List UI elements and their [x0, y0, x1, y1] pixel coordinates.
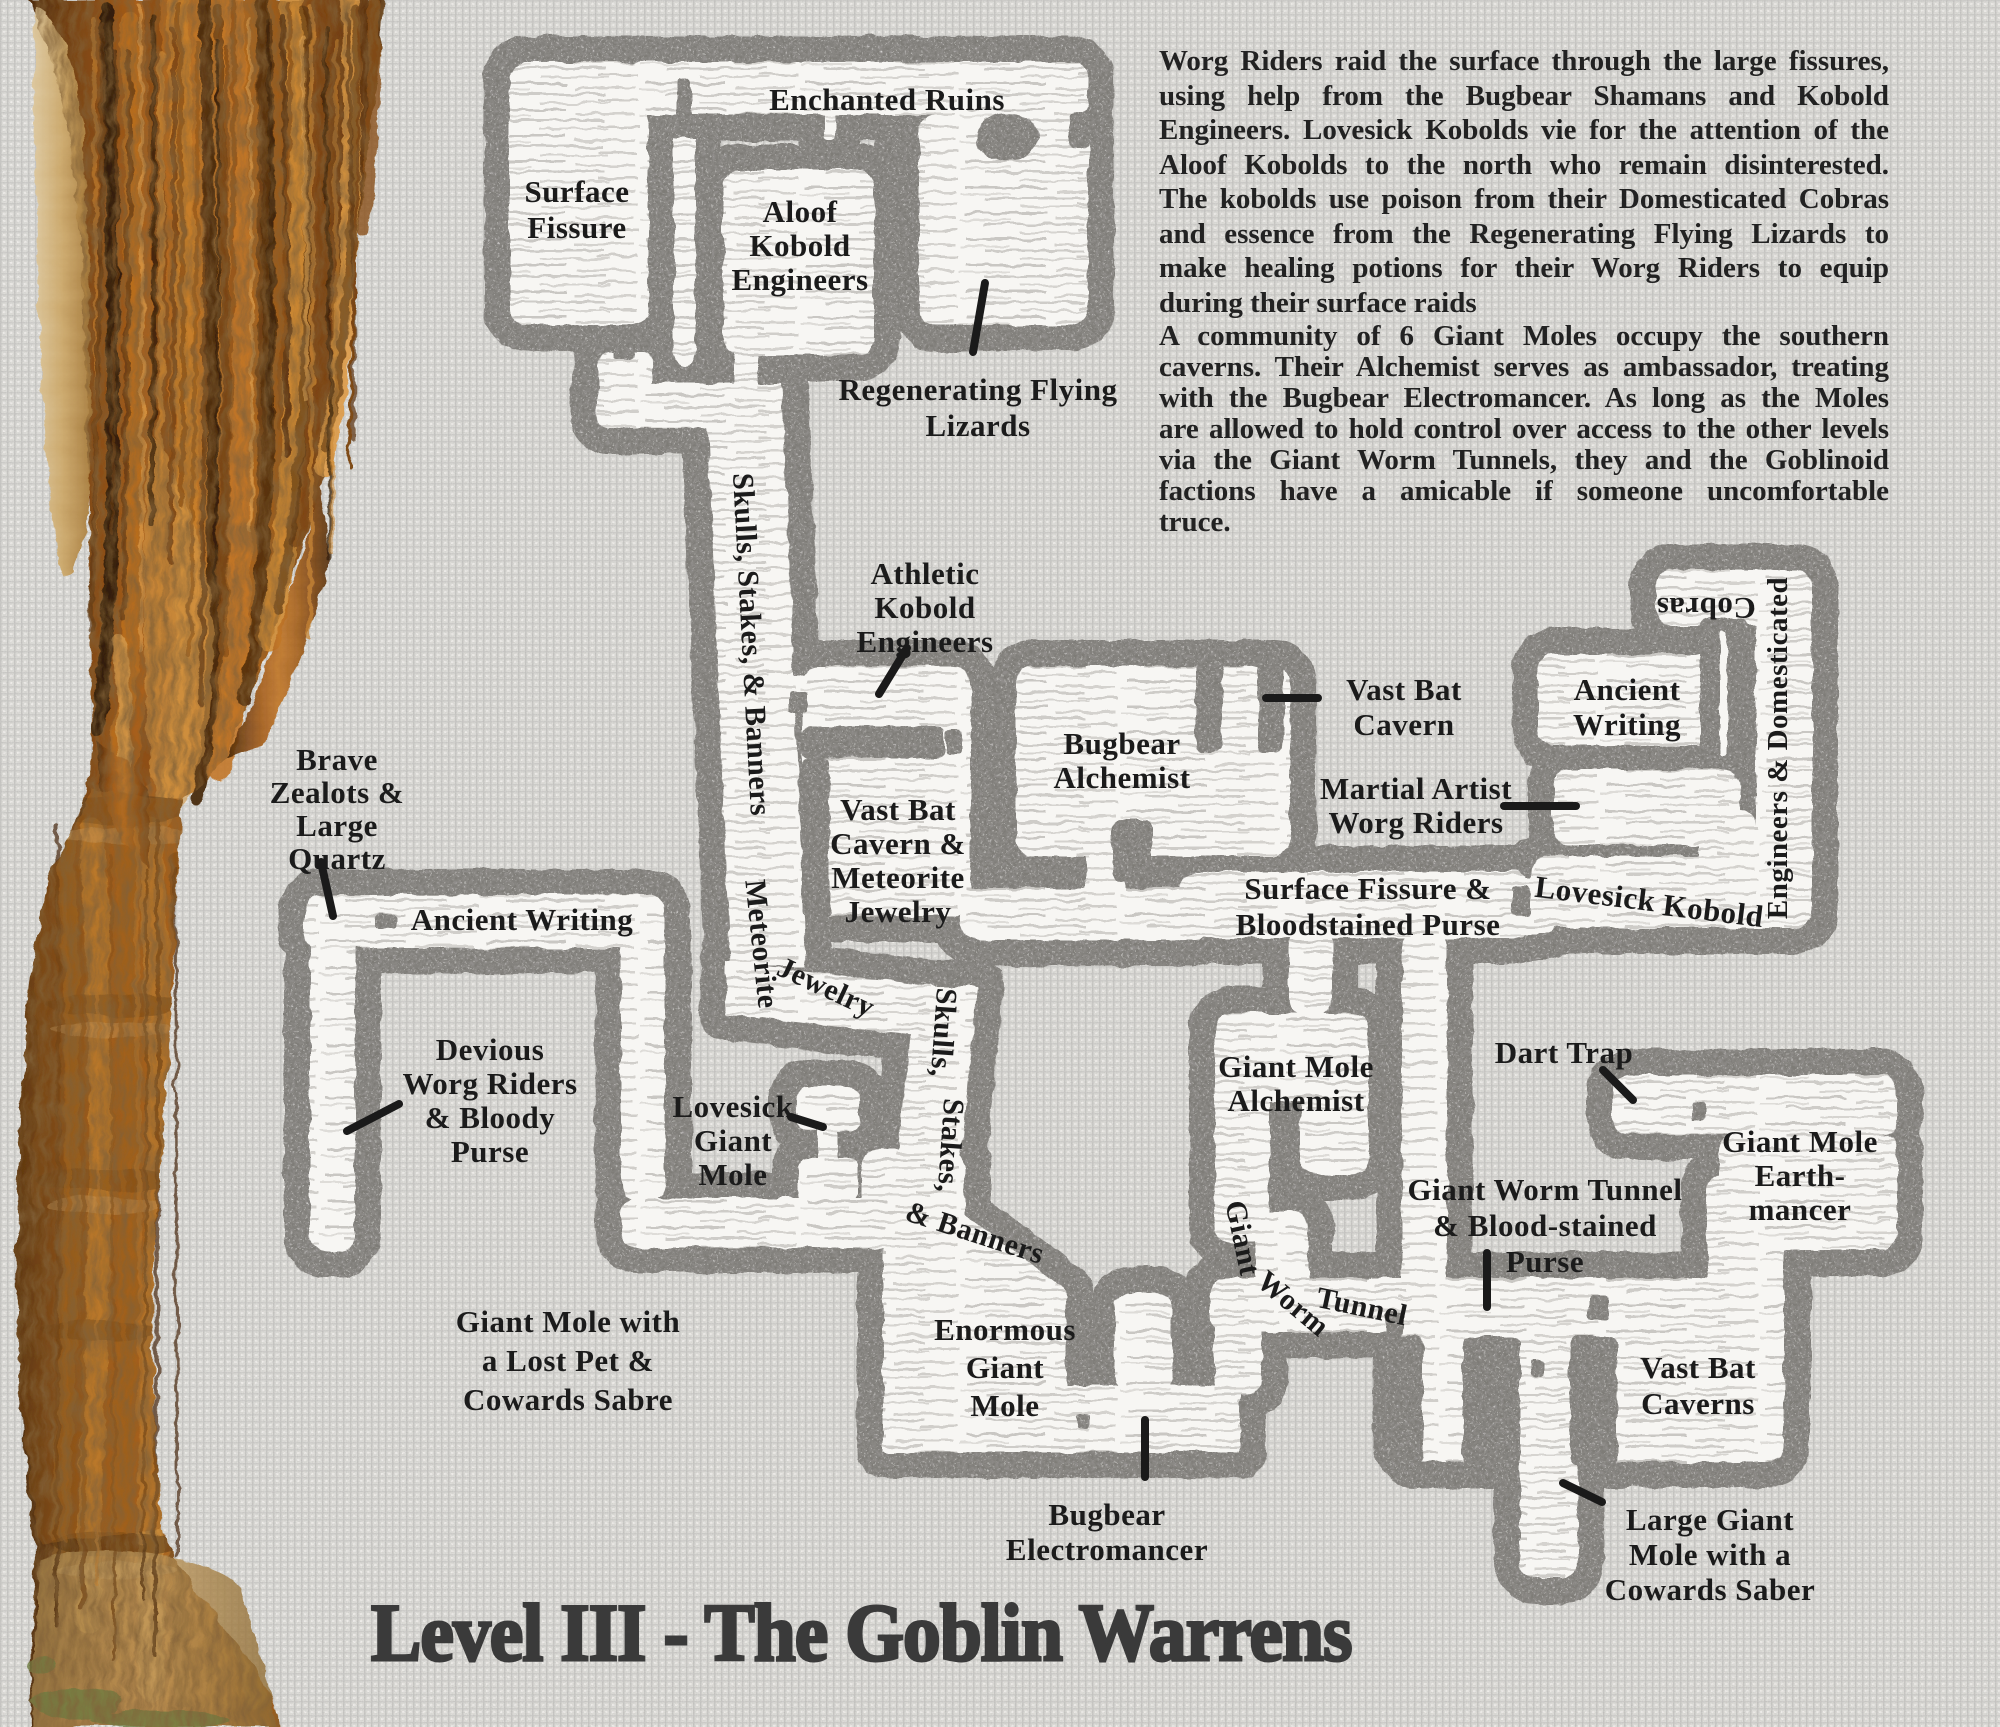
- svg-text:Kobold: Kobold: [874, 590, 975, 625]
- svg-text:Surface: Surface: [524, 174, 629, 209]
- svg-text:a Lost Pet &: a Lost Pet &: [482, 1343, 654, 1378]
- svg-text:mancer: mancer: [1749, 1192, 1852, 1227]
- svg-text:Engineers & Domesticated: Engineers & Domesticated: [1762, 577, 1794, 919]
- svg-text:Zealots &: Zealots &: [270, 775, 405, 810]
- svg-text:Writing: Writing: [1573, 707, 1681, 742]
- svg-text:Enormous: Enormous: [934, 1312, 1076, 1347]
- svg-text:Giant: Giant: [966, 1350, 1044, 1385]
- svg-text:Mole with a: Mole with a: [1629, 1537, 1791, 1572]
- svg-text:Giant Mole with: Giant Mole with: [456, 1304, 681, 1339]
- svg-text:Cowards Sabre: Cowards Sabre: [463, 1382, 673, 1417]
- svg-text:Bugbear: Bugbear: [1063, 726, 1180, 761]
- svg-text:Worg Riders: Worg Riders: [402, 1066, 577, 1101]
- svg-text:Worg Riders: Worg Riders: [1328, 805, 1503, 840]
- svg-text:Earth-: Earth-: [1755, 1158, 1846, 1193]
- svg-text:Large: Large: [296, 808, 378, 843]
- svg-text:Cobras: Cobras: [1656, 591, 1755, 626]
- svg-text:Lovesick: Lovesick: [672, 1089, 793, 1124]
- svg-text:Enchanted Ruins: Enchanted Ruins: [769, 82, 1005, 117]
- svg-text:Giant Mole: Giant Mole: [1218, 1049, 1374, 1084]
- svg-text:Large Giant: Large Giant: [1626, 1502, 1794, 1537]
- svg-text:Giant Mole: Giant Mole: [1722, 1124, 1878, 1159]
- svg-text:Giant: Giant: [694, 1123, 772, 1158]
- svg-text:Devious: Devious: [436, 1032, 545, 1067]
- svg-text:Engineers: Engineers: [856, 624, 993, 659]
- svg-text:Vast Bat: Vast Bat: [840, 792, 956, 827]
- svg-text:Skulls,: Skulls,: [924, 987, 963, 1078]
- svg-text:Purse: Purse: [451, 1134, 529, 1169]
- svg-text:Cavern &: Cavern &: [830, 826, 966, 861]
- svg-text:Aloof: Aloof: [763, 194, 838, 229]
- svg-text:Surface Fissure &: Surface Fissure &: [1244, 871, 1491, 906]
- svg-text:& Blood-stained: & Blood-stained: [1433, 1208, 1657, 1243]
- svg-text:Athletic: Athletic: [870, 556, 979, 591]
- svg-text:& Bloody: & Bloody: [425, 1100, 556, 1135]
- svg-text:Cavern: Cavern: [1353, 707, 1454, 742]
- svg-text:Cowards Saber: Cowards Saber: [1605, 1572, 1816, 1607]
- svg-text:Caverns: Caverns: [1641, 1386, 1755, 1421]
- svg-text:Purse: Purse: [1506, 1244, 1584, 1279]
- svg-text:Engineers: Engineers: [731, 262, 868, 297]
- svg-text:Stakes,: Stakes,: [931, 1097, 971, 1193]
- svg-text:Alchemist: Alchemist: [1053, 760, 1190, 795]
- svg-text:Electromancer: Electromancer: [1006, 1532, 1208, 1567]
- svg-text:Quartz: Quartz: [288, 841, 386, 876]
- svg-text:Meteorite: Meteorite: [831, 860, 965, 895]
- svg-text:Bloodstained Purse: Bloodstained Purse: [1236, 907, 1501, 942]
- svg-text:Lizards: Lizards: [925, 408, 1030, 443]
- svg-text:Martial Artist: Martial Artist: [1320, 771, 1512, 806]
- svg-text:Bugbear: Bugbear: [1048, 1497, 1165, 1532]
- svg-text:Ancient Writing: Ancient Writing: [411, 902, 634, 937]
- svg-text:Ancient: Ancient: [1574, 672, 1681, 707]
- svg-text:Vast Bat: Vast Bat: [1640, 1350, 1756, 1385]
- svg-text:Vast Bat: Vast Bat: [1346, 672, 1462, 707]
- svg-text:Fissure: Fissure: [527, 210, 626, 245]
- svg-text:Giant Worm Tunnel: Giant Worm Tunnel: [1408, 1172, 1683, 1207]
- svg-text:Alchemist: Alchemist: [1227, 1083, 1364, 1118]
- svg-text:Dart Trap: Dart Trap: [1495, 1035, 1634, 1070]
- svg-text:Mole: Mole: [970, 1388, 1039, 1423]
- svg-text:Jewelry: Jewelry: [845, 894, 952, 929]
- svg-text:Mole: Mole: [698, 1157, 767, 1192]
- svg-text:Brave: Brave: [296, 742, 378, 777]
- svg-text:Kobold: Kobold: [749, 228, 850, 263]
- svg-text:Regenerating Flying: Regenerating Flying: [839, 372, 1118, 407]
